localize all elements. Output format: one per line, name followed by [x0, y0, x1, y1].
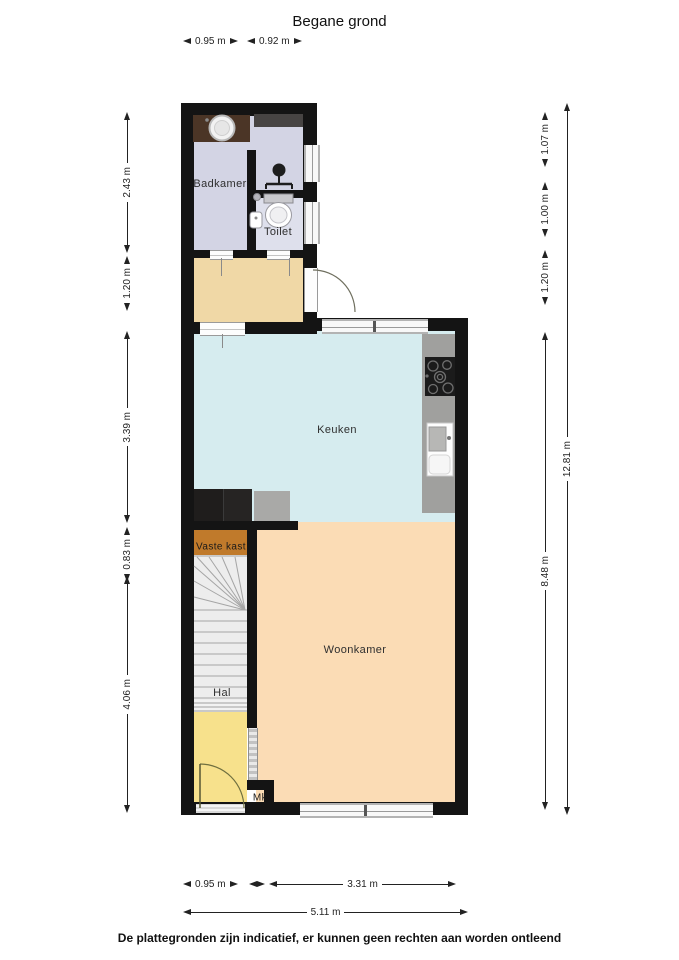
- dim-label: 0.83 m: [122, 535, 133, 574]
- wall-stairs-right: [247, 528, 257, 728]
- dim-bottom-3-31: 3.31 m: [269, 877, 456, 891]
- dim-label: 12.81 m: [562, 437, 573, 481]
- dim-bottom-5-11: 5.11 m: [183, 905, 468, 919]
- cooktop-icon: [425, 357, 455, 396]
- room-label-mk: Mk: [253, 793, 267, 804]
- dim-left-0-83: 0.83 m: [120, 527, 134, 573]
- dim-left-3-39: 3.39 m: [120, 331, 134, 523]
- woonkamer-floor: [298, 522, 455, 802]
- wall-mk-top: [247, 780, 274, 790]
- front-door-opening: [196, 804, 245, 813]
- dim-right-1-00: 1.00 m: [538, 182, 552, 244]
- woonkamer-floor-strip: [256, 530, 298, 802]
- dim-bottom-tiny-arrows: [249, 877, 267, 891]
- dim-left-4-06: 4.06 m: [120, 576, 134, 813]
- room-label-toilet: Toilet: [264, 226, 292, 238]
- hal-tussen-floor: [194, 258, 303, 322]
- disclaimer-text: De plattegronden zijn indicatief, er kun…: [0, 931, 679, 945]
- toilet-floor: [256, 198, 303, 250]
- dim-top-0-92: 0.92 m: [247, 34, 304, 48]
- room-label-hal: Hal: [213, 687, 231, 699]
- dim-label: 4.06 m: [122, 675, 133, 714]
- dim-right-1-07: 1.07 m: [538, 112, 552, 177]
- room-label-badkamer: Badkamer: [193, 178, 246, 190]
- dim-left-2-43: 2.43 m: [120, 112, 134, 253]
- dim-label: 1.00 m: [540, 190, 551, 229]
- window-keuken-top: [322, 319, 428, 334]
- dim-left-1-20: 1.20 m: [120, 256, 134, 329]
- door-tick: [221, 258, 222, 276]
- door-tick: [222, 334, 223, 348]
- room-label-woonkamer: Woonkamer: [324, 644, 387, 656]
- dim-label: 0.92 m: [255, 36, 294, 47]
- wall-shower-toilet: [251, 190, 303, 198]
- dim-right-1-20: 1.20 m: [538, 250, 552, 311]
- kitchen-unit: [254, 491, 290, 521]
- vanity-counter: [193, 115, 250, 142]
- entree-woonkamer-door: [248, 728, 258, 780]
- dim-label: 3.39 m: [122, 408, 133, 447]
- window-mullion: [364, 805, 367, 816]
- stair-bottom-tread: [194, 700, 247, 712]
- dim-label: 5.11 m: [307, 907, 345, 918]
- dim-label: 1.07 m: [540, 120, 551, 159]
- dim-label: 0.95 m: [191, 879, 230, 890]
- dim-label: 2.43 m: [122, 163, 133, 202]
- dim-label: 0.95 m: [191, 36, 230, 47]
- dim-top-0-95: 0.95 m: [183, 34, 247, 48]
- dim-label: 8.48 m: [540, 552, 551, 591]
- shelf: [254, 114, 303, 127]
- room-label-keuken: Keuken: [317, 424, 357, 436]
- dim-bottom-0-95: 0.95 m: [183, 877, 247, 891]
- side-door-opening: [304, 268, 318, 312]
- dim-right-12-81: 12.81 m: [560, 103, 574, 815]
- wall-keuken-bottom: [181, 521, 298, 530]
- window-mullion: [373, 321, 376, 332]
- room-label-vaste-kast: Vaste kast: [196, 542, 246, 553]
- wall-right-lower: [455, 318, 468, 815]
- side-door-arc: [313, 270, 355, 312]
- dim-right-8-48: 8.48 m: [538, 332, 552, 810]
- dim-label: 1.20 m: [540, 258, 551, 297]
- toilet-door-opening: [267, 250, 290, 260]
- kitchen-cabinet: [224, 489, 252, 521]
- dim-label: 1.20 m: [122, 264, 133, 303]
- window-woonkamer-bottom: [300, 803, 433, 818]
- entree-floor: [194, 712, 247, 802]
- floorplan-page: Begane grond De plattegronden zijn indic…: [0, 0, 679, 960]
- dim-label: 3.31 m: [343, 879, 382, 890]
- kitchen-cabinet: [194, 489, 224, 521]
- wall-badkamer-divider: [247, 150, 256, 258]
- wall-left: [181, 103, 194, 815]
- door-tick: [289, 258, 290, 276]
- window-toilet: [304, 202, 320, 244]
- window-badkamer: [304, 145, 320, 182]
- page-title: Begane grond: [0, 13, 679, 30]
